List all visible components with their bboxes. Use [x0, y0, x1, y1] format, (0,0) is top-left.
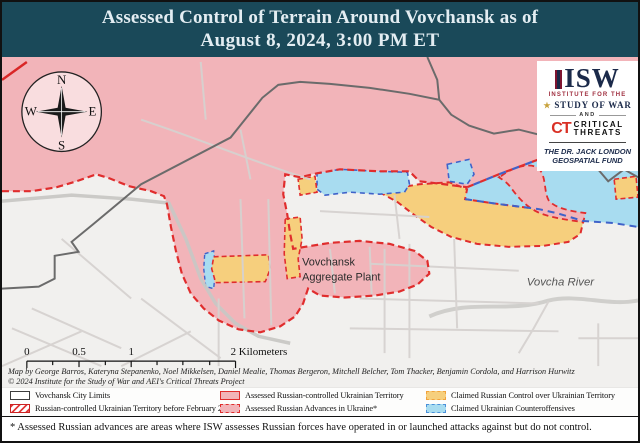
ukrainian-counteroffensives-swatch: [426, 404, 446, 413]
attribution-line1: Map by George Barros, Kateryna Stepanenk…: [7, 367, 576, 376]
scale-2km: 2 Kilometers: [231, 346, 288, 358]
legend-russian-advances: Assessed Russian Advances in Ukraine*: [220, 404, 377, 413]
isw-study-of-war-text: ★ STUDY OF WAR: [543, 100, 631, 110]
isw-map-page: Assessed Control of Terrain Around Vovch…: [0, 0, 640, 443]
scale-0: 0: [24, 346, 30, 358]
map-title-line2: August 8, 2024, 3:00 PM ET: [2, 30, 638, 52]
legend-city-limits-label: Vovchansk City Limits: [35, 391, 110, 400]
legend-claimed-russian-control-label: Claimed Russian Control over Ukrainian T…: [451, 391, 615, 400]
russian-advances-swatch: [220, 404, 240, 413]
isw-study-of-war-label: STUDY OF WAR: [554, 100, 631, 110]
map-title-line1: Assessed Control of Terrain Around Vovch…: [2, 7, 638, 29]
logo-divider: [549, 142, 627, 143]
terrain-map: N E S W Vovchansk Aggregate Plant Vovcha…: [2, 57, 638, 388]
isw-star-icon: ★: [543, 101, 551, 110]
map-title-bar: Assessed Control of Terrain Around Vovch…: [2, 2, 638, 57]
legend-russian-controlled: Assessed Russian-controlled Ukrainian Te…: [220, 391, 404, 400]
geospatial-fund-label: THE DR. JACK LONDON GEOSPATIAL FUND: [544, 147, 631, 165]
fund-line1: THE DR. JACK LONDON: [544, 147, 631, 156]
russian-controlled-swatch: [220, 391, 240, 400]
map-footnote: * Assessed Russian advances are areas wh…: [2, 417, 638, 442]
legend-ukrainian-counteroffensives-label: Claimed Ukrainian Counteroffensives: [451, 404, 575, 413]
claimed-russian-patch-4: [614, 176, 638, 199]
isw-institute-text: INSTITUTE FOR THE: [549, 92, 627, 98]
city-limits-swatch: [10, 391, 30, 400]
isw-medal-ribbon-icon: [555, 70, 562, 89]
logo-and-label: AND: [579, 112, 595, 118]
critical-threats-logo: CT CRITICAL THREATS: [551, 120, 623, 138]
legend-ukrainian-counteroffensives: Claimed Ukrainian Counteroffensives: [426, 404, 575, 413]
counteroffensive-strip: [317, 169, 409, 195]
compass-w: W: [25, 104, 38, 119]
scale-05: 0.5: [72, 346, 86, 358]
vovcha-river-label: Vovcha River: [527, 277, 596, 289]
prewar-territory-swatch: [10, 404, 30, 413]
legend-prewar-territory-label: Russian-controlled Ukrainian Territory b…: [35, 404, 226, 413]
claimed-russian-control-swatch: [426, 391, 446, 400]
isw-wordmark: ISW: [564, 66, 620, 90]
legend-prewar-territory: Russian-controlled Ukrainian Territory b…: [10, 404, 226, 413]
scale-1: 1: [128, 346, 133, 358]
ct-monogram-icon: CT: [551, 120, 570, 138]
isw-ct-logo-block: ISW INSTITUTE FOR THE ★ STUDY OF WAR AND…: [537, 61, 638, 171]
legend-russian-controlled-label: Assessed Russian-controlled Ukrainian Te…: [245, 391, 404, 400]
ct-threats-label: THREATS: [574, 129, 624, 137]
legend-claimed-russian-control: Claimed Russian Control over Ukrainian T…: [426, 391, 615, 400]
compass-rose-icon: N E S W: [22, 72, 102, 153]
compass-e: E: [88, 104, 96, 119]
attribution-line2: © 2024 Institute for the Study of War an…: [8, 377, 245, 386]
compass-s: S: [58, 137, 65, 152]
logo-and-separator: AND: [550, 112, 626, 118]
compass-n: N: [57, 72, 67, 87]
legend-russian-advances-label: Assessed Russian Advances in Ukraine*: [245, 404, 377, 413]
aggregate-plant-label-line2: Aggregate Plant: [302, 272, 380, 284]
legend-city-limits: Vovchansk City Limits: [10, 391, 110, 400]
claimed-russian-patch-2: [212, 255, 271, 283]
aggregate-plant-label-line1: Vovchansk: [302, 257, 355, 269]
map-legend: Vovchansk City Limits Russian-controlled…: [2, 388, 638, 417]
counteroffensive-patch: [447, 159, 474, 184]
fund-line2: GEOSPATIAL FUND: [544, 156, 631, 165]
